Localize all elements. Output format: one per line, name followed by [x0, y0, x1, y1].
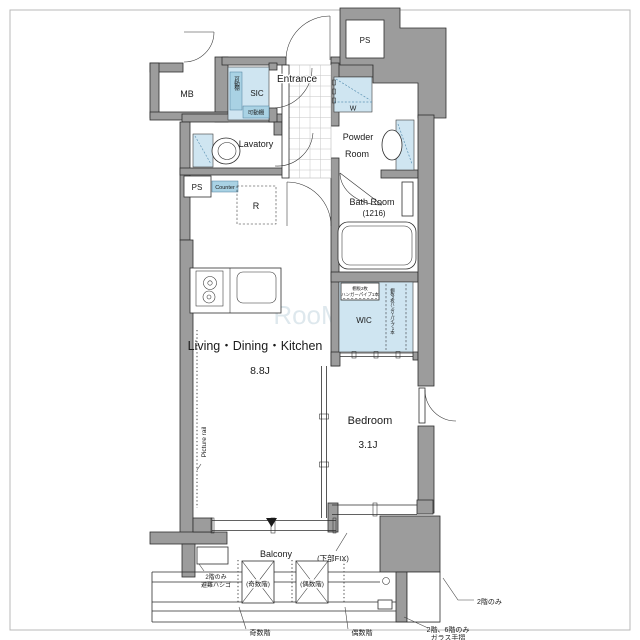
balcony-label: Balcony — [260, 549, 293, 559]
bedroom-outer-door-arc — [419, 388, 456, 423]
refrigerator-space: R — [237, 186, 276, 224]
counter-label: Counter — [215, 185, 235, 191]
even-floor-label: 偶数階 — [352, 628, 373, 637]
picture-rail: Picture rail — [197, 330, 208, 508]
ldk-door-arc — [287, 182, 331, 226]
odd-floor-label: 奇数階 — [250, 628, 271, 637]
sliding-partition — [320, 366, 329, 518]
entrance-door-arc — [286, 16, 330, 60]
picture-rail-label: Picture rail — [201, 426, 208, 457]
wic-shelf-note-2: ハンガーパイプ1本 — [341, 291, 379, 298]
ldk-label: Living・Dining・Kitchen — [188, 339, 323, 353]
wic-shelf-vertical-label: 棚板2枚ハンガーパイプ1本 — [390, 287, 396, 336]
refrigerator-label: R — [253, 201, 260, 211]
second-floor-only-label: 2階のみ — [477, 597, 502, 606]
movable-shelf-bottom-label: 可動棚 — [248, 109, 265, 117]
mb-label: MB — [180, 89, 194, 99]
movable-shelf-vertical-label: 可動棚 — [233, 76, 240, 92]
wic-closet: 棚板2枚 ハンガーパイプ1本 棚板2枚ハンガーパイプ1本 WIC — [339, 282, 413, 358]
sic-label: SIC — [250, 89, 264, 98]
bath-counter — [402, 182, 413, 216]
bath-room-label: Bath Room — [349, 197, 394, 207]
kitchen-counter-badge: Counter — [212, 181, 238, 192]
sic-closet: 可動棚 SIC 可動棚 — [228, 67, 269, 120]
bedroom-label: Bedroom — [348, 415, 393, 427]
lavatory-label: Lavatory — [239, 139, 274, 149]
even-floor-box-label: (偶数階) — [300, 579, 324, 588]
entrance-label: Entrance — [277, 74, 317, 85]
ldk-size: 8.8J — [250, 365, 270, 377]
kitchen — [190, 268, 281, 313]
floor-plan-svg: RooM — [0, 0, 640, 640]
odd-floor-box-label: (奇数階) — [246, 579, 270, 588]
lavatory: Lavatory — [193, 134, 274, 167]
ps-side-label: PS — [192, 183, 203, 192]
glass-rail-label-2: ガラス手摺 — [431, 633, 466, 640]
powder-room-label-2: Room — [345, 149, 369, 159]
vanity-sink — [382, 130, 402, 160]
drain — [383, 578, 390, 585]
ps-top-label: PS — [360, 36, 371, 45]
window-center-marker — [266, 518, 277, 527]
evacuation-hatch: 2階のみ 避難ハシゴ — [197, 547, 231, 589]
bedroom: Bedroom 3.1J — [320, 366, 393, 518]
ps-side: PS — [184, 176, 211, 197]
ps-top: PS — [346, 20, 384, 58]
washer-space: W — [333, 77, 373, 113]
hatch-label-2: 避難ハシゴ — [201, 581, 231, 589]
even-floor-hatch-box: (偶数階) — [296, 561, 328, 603]
powder-room: Powder Room — [343, 120, 414, 170]
wic-shelf-note-1: 棚板2枚 — [352, 285, 368, 292]
floor-plan: RooM — [0, 0, 640, 640]
balcony-niche — [407, 572, 440, 622]
powder-room-label-1: Powder — [343, 132, 374, 142]
floor-annotations: 奇数階 偶数階 2階のみ 2階、6階のみ ガラス手摺 — [239, 578, 502, 640]
bedroom-size: 3.1J — [359, 440, 378, 451]
bathtub — [338, 222, 416, 269]
hatch-label-1: 2階のみ — [205, 573, 226, 581]
wic-label: WIC — [356, 316, 372, 325]
odd-floor-hatch-box: (奇数階) — [242, 561, 274, 603]
washer-label: W — [350, 106, 357, 113]
ldk-balcony-window — [211, 518, 336, 533]
glass-rail-label-1: 2階、6階のみ — [427, 625, 470, 634]
bedroom-balcony-window — [332, 503, 417, 516]
bath-room-size: (1216) — [362, 209, 385, 218]
mb-door-arc — [184, 32, 214, 62]
rail-vent — [378, 600, 392, 609]
bath-room: Bath Room (1216) — [338, 182, 416, 269]
